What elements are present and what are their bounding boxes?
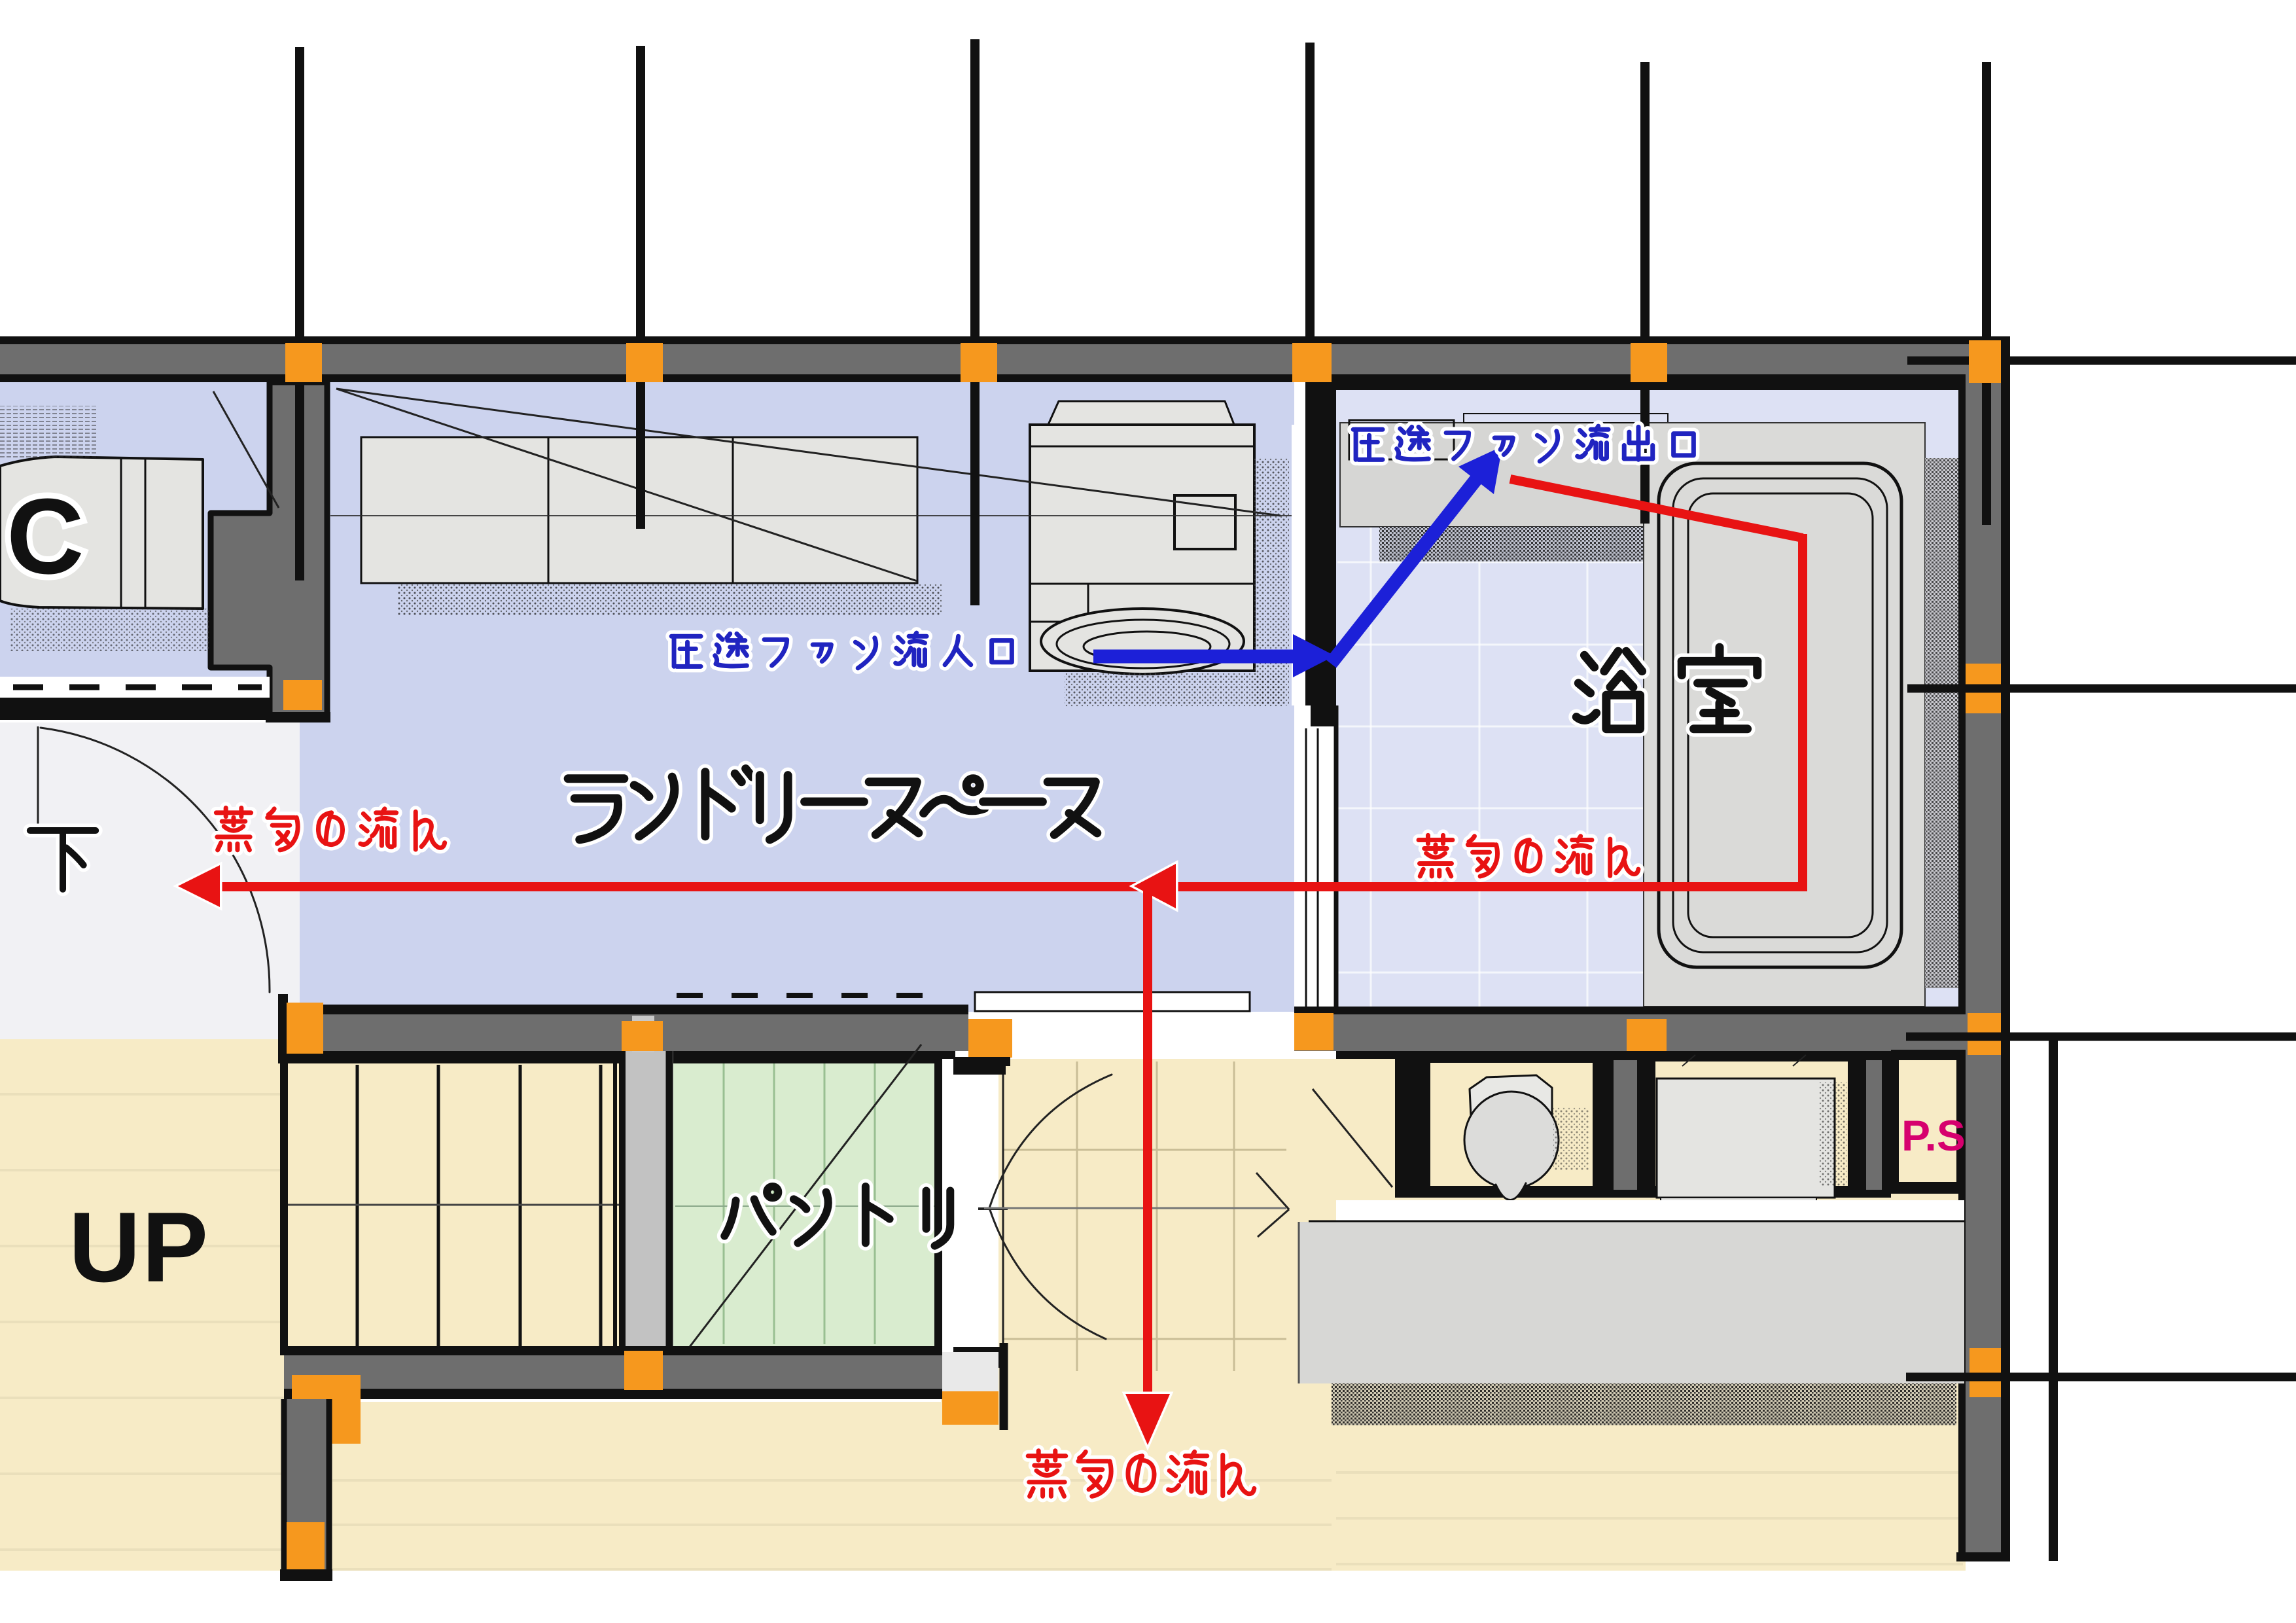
svg-text:UP: UP [69, 1192, 209, 1303]
svg-text:C: C [7, 476, 84, 596]
svg-text:P.S: P.S [1901, 1111, 1966, 1160]
